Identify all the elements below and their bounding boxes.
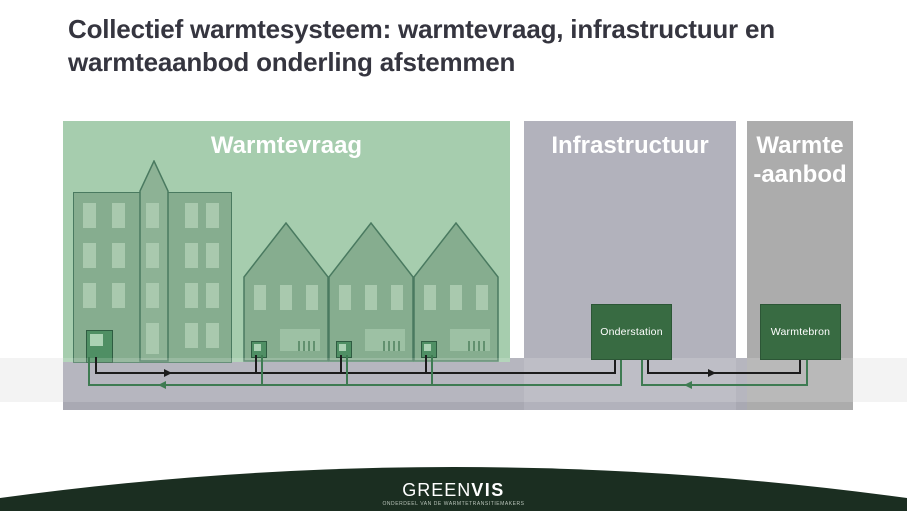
greenvis-logo: GREENVIS ONDERDEEL VAN DE WARMTETRANSITI…: [0, 481, 907, 507]
vent-grille: [468, 341, 487, 351]
window: [146, 323, 159, 354]
brand-vis-text: VIS: [471, 480, 505, 500]
slide: Collectief warmtesysteem: warmtevraag, i…: [0, 0, 907, 511]
flow-arrow-left-icon: [684, 381, 692, 389]
heat-meter-box-window: [424, 344, 431, 351]
window: [112, 243, 125, 268]
window: [112, 203, 125, 228]
window: [280, 285, 292, 310]
pipe-black-drop-apartment: [95, 357, 97, 374]
pipe-green-riser-warmtebron: [806, 358, 808, 385]
flow-arrow-left-icon: [158, 381, 166, 389]
panel-warmteaanbod-label-line2: -aanbod: [747, 160, 853, 189]
pipe-green-drop-apartment: [88, 357, 90, 385]
window: [254, 285, 266, 310]
pipe-green-drop-onderstation-right: [641, 358, 643, 385]
heat-meter-box-window: [339, 344, 346, 351]
vent-grille: [383, 341, 402, 351]
window: [476, 285, 488, 310]
greenvis-wordmark: GREENVIS: [0, 481, 907, 499]
window: [365, 285, 377, 310]
window: [112, 283, 125, 308]
pipe-green-demand-main: [88, 384, 622, 386]
window: [206, 283, 219, 308]
heat-meter-box-window: [254, 344, 261, 351]
window: [146, 243, 159, 268]
pipe-black-supply-main: [647, 372, 801, 374]
window: [83, 243, 96, 268]
window: [185, 203, 198, 228]
onderstation-label: Onderstation: [600, 326, 663, 338]
window: [206, 243, 219, 268]
window: [339, 285, 351, 310]
brand-green-text: GREEN: [402, 480, 471, 500]
vent-grille: [298, 341, 317, 351]
window: [185, 323, 198, 348]
panel-warmteaanbod-label-line1: Warmte: [747, 131, 853, 160]
window: [424, 285, 436, 310]
window: [83, 203, 96, 228]
pipe-green-drop-house: [261, 355, 263, 385]
pipe-green-drop-house: [431, 355, 433, 385]
window: [206, 323, 219, 348]
warmtebron-label: Warmtebron: [771, 326, 830, 338]
onderstation-box: Onderstation: [591, 304, 672, 360]
panel-warmtevraag-label: Warmtevraag: [63, 131, 510, 160]
pipe-green-supply-main: [641, 384, 808, 386]
heat-meter-box-window: [90, 334, 103, 346]
pipe-black-drop-house: [255, 355, 257, 374]
footer-tagline: ONDERDEEL VAN DE WARMTETRANSITIEMAKERS: [0, 501, 907, 507]
panel-warmteaanbod-label: Warmte -aanbod: [747, 131, 853, 189]
window: [146, 203, 159, 228]
ground-highlight-band: [0, 358, 907, 402]
window: [450, 285, 462, 310]
pipe-black-demand-main: [95, 372, 616, 374]
window: [146, 283, 159, 308]
window: [306, 285, 318, 310]
flow-arrow-right-icon: [164, 369, 172, 377]
page-title: Collectief warmtesysteem: warmtevraag, i…: [68, 13, 838, 79]
pipe-green-drop-house: [346, 355, 348, 385]
pipe-black-drop-house: [340, 355, 342, 374]
window: [83, 283, 96, 308]
window: [206, 203, 219, 228]
window: [185, 283, 198, 308]
panel-infrastructuur-label: Infrastructuur: [524, 131, 736, 160]
warmtebron-box: Warmtebron: [760, 304, 841, 360]
window: [391, 285, 403, 310]
flow-arrow-right-icon: [708, 369, 716, 377]
pipe-black-riser-warmtebron: [799, 358, 801, 374]
pipe-black-drop-house: [425, 355, 427, 374]
pipe-black-drop-onderstation-left: [614, 358, 616, 374]
pipe-black-drop-onderstation-right: [647, 358, 649, 374]
window: [185, 243, 198, 268]
pipe-green-drop-onderstation-left: [620, 358, 622, 385]
